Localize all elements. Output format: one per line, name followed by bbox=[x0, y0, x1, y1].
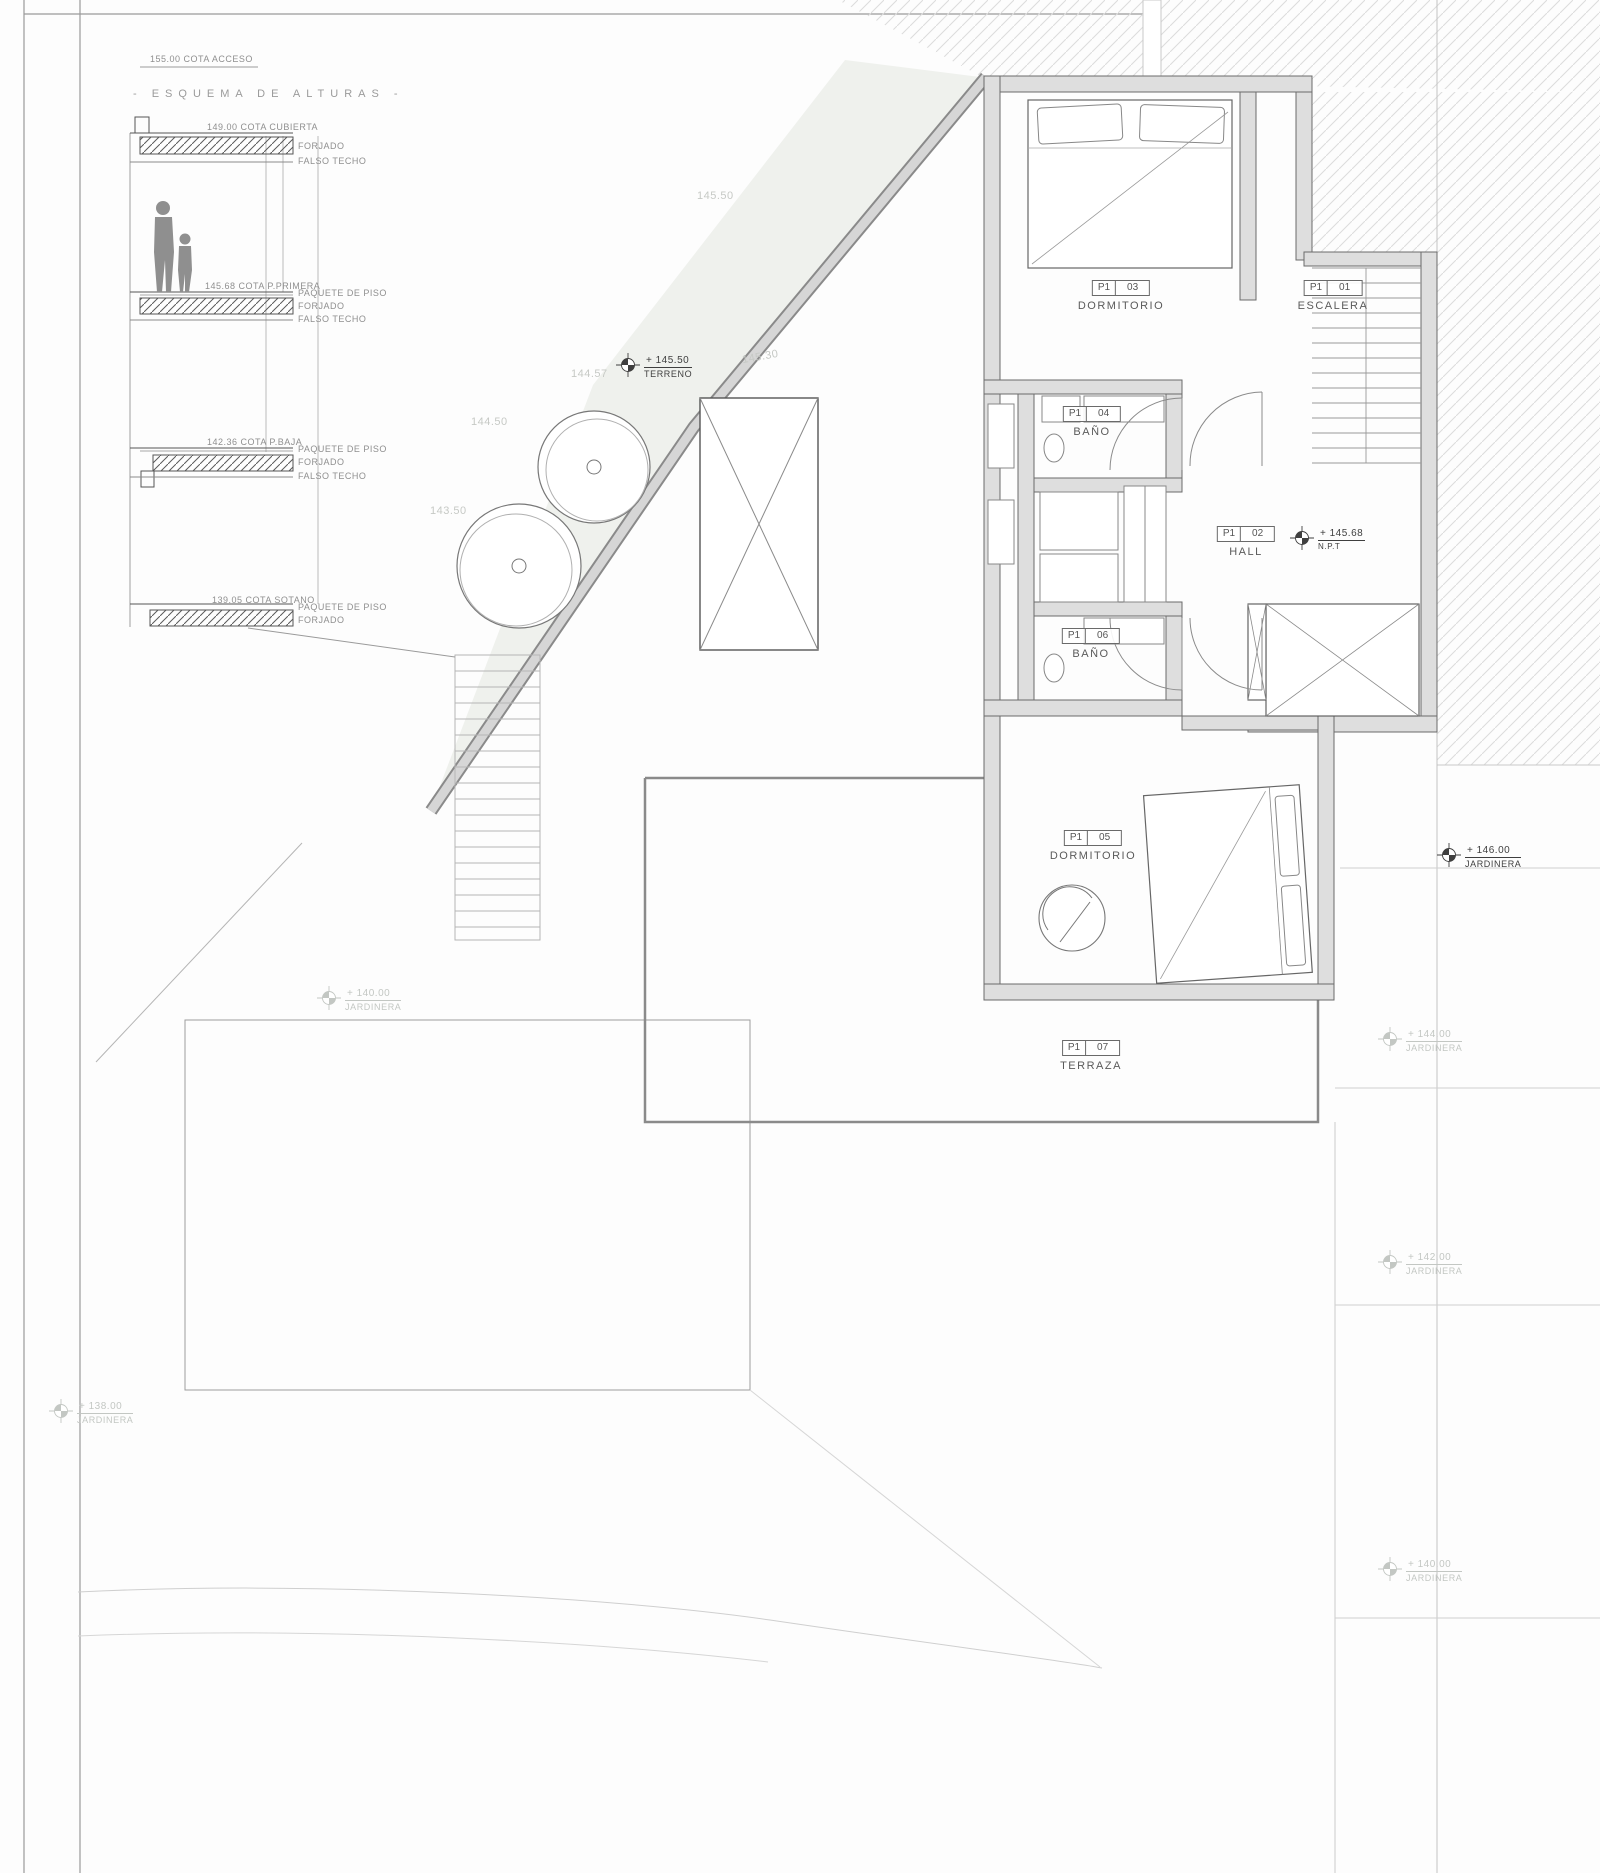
room-name: DORMITORIO bbox=[1050, 850, 1136, 862]
level-label: JARDINERA bbox=[77, 1415, 133, 1425]
room-tag-bano-04: P1 04 BAÑO bbox=[1063, 406, 1121, 438]
skylight bbox=[700, 398, 818, 650]
contour-label: 143.50 bbox=[430, 505, 467, 517]
armchair bbox=[1039, 885, 1105, 951]
forjado-label: FORJADO bbox=[298, 615, 345, 625]
level-label: JARDINERA bbox=[345, 1002, 401, 1012]
room-name: HALL bbox=[1229, 546, 1263, 558]
room-code-num: 01 bbox=[1328, 281, 1361, 295]
falso-techo-label: FALSO TECHO bbox=[298, 156, 366, 166]
level-marker-icon bbox=[1377, 1249, 1403, 1275]
contour-label: 144.50 bbox=[471, 416, 508, 428]
spot-level-jardinera-r3: + 140.00 JARDINERA bbox=[1377, 1556, 1462, 1583]
room-code-num: 02 bbox=[1241, 527, 1274, 541]
room-code-box: P1 06 bbox=[1062, 628, 1120, 644]
room-tag-terraza-07: P1 07 TERRAZA bbox=[1060, 1040, 1122, 1072]
drawing-sheet: 155.00 COTA ACCESO - ESQUEMA DE ALTURAS … bbox=[0, 0, 1600, 1873]
level-label: N.P.T bbox=[1318, 542, 1365, 551]
bed-bottom bbox=[1144, 785, 1313, 983]
level-marker-icon bbox=[1289, 525, 1315, 551]
human-figures bbox=[154, 201, 192, 292]
level-value: + 146.00 bbox=[1465, 845, 1521, 858]
esquema-title: - ESQUEMA DE ALTURAS - bbox=[133, 88, 404, 100]
room-tag-escalera-01: P1 01 ESCALERA bbox=[1298, 280, 1369, 312]
spot-level-jardinera-left: + 140.00 JARDINERA bbox=[316, 985, 401, 1012]
level-value: + 140.00 bbox=[345, 988, 401, 1001]
room-code-num: 03 bbox=[1116, 281, 1149, 295]
room-code-box: P1 07 bbox=[1062, 1040, 1120, 1056]
room-code-box: P1 05 bbox=[1064, 830, 1122, 846]
sheet-border-lines bbox=[24, 0, 1150, 1873]
room-code-prefix: P1 bbox=[1065, 831, 1088, 845]
level-value: + 138.00 bbox=[77, 1401, 133, 1414]
paquete-piso-label: PAQUETE DE PISO bbox=[298, 288, 387, 298]
room-tag-dormitorio-03: P1 03 DORMITORIO bbox=[1078, 280, 1164, 312]
level-label: JARDINERA bbox=[1406, 1266, 1462, 1276]
room-code-box: P1 04 bbox=[1063, 406, 1121, 422]
level-label: JARDINERA bbox=[1465, 859, 1521, 869]
level-marker-icon bbox=[1377, 1556, 1403, 1582]
room-name: DORMITORIO bbox=[1078, 300, 1164, 312]
esquema-section bbox=[130, 67, 318, 627]
room-code-prefix: P1 bbox=[1063, 1041, 1086, 1055]
room-code-prefix: P1 bbox=[1063, 629, 1086, 643]
level-marker-icon bbox=[1377, 1026, 1403, 1052]
room-code-prefix: P1 bbox=[1218, 527, 1241, 541]
falso-techo-label: FALSO TECHO bbox=[298, 471, 366, 481]
spot-level-jardinera-r2: + 142.00 JARDINERA bbox=[1377, 1249, 1462, 1276]
room-tag-bano-06: P1 06 BAÑO bbox=[1062, 628, 1120, 660]
contour-label: 145.50 bbox=[697, 190, 734, 202]
room-name: BAÑO bbox=[1072, 648, 1109, 660]
room-code-num: 06 bbox=[1086, 629, 1119, 643]
forjado-label: FORJADO bbox=[298, 457, 345, 467]
room-name: ESCALERA bbox=[1298, 300, 1369, 312]
level-value: + 145.68 bbox=[1318, 528, 1365, 541]
spot-level-jardinera-r1: + 144.00 JARDINERA bbox=[1377, 1026, 1462, 1053]
room-code-num: 04 bbox=[1087, 407, 1120, 421]
room-code-box: P1 03 bbox=[1092, 280, 1150, 296]
bed-top bbox=[1028, 100, 1232, 268]
room-code-prefix: P1 bbox=[1093, 281, 1116, 295]
paquete-piso-label: PAQUETE DE PISO bbox=[298, 602, 387, 612]
level-marker-icon bbox=[316, 985, 342, 1011]
paquete-piso-label: PAQUETE DE PISO bbox=[298, 444, 387, 454]
room-tag-dormitorio-05: P1 05 DORMITORIO bbox=[1050, 830, 1136, 862]
room-code-box: P1 01 bbox=[1304, 280, 1362, 296]
room-name: TERRAZA bbox=[1060, 1060, 1122, 1072]
forjado-label: FORJADO bbox=[298, 141, 345, 151]
level-value: + 142.00 bbox=[1406, 1252, 1462, 1265]
room-name: BAÑO bbox=[1073, 426, 1110, 438]
level-marker-icon bbox=[615, 352, 641, 378]
level-marker-icon bbox=[1436, 842, 1462, 868]
room-code-num: 05 bbox=[1088, 831, 1121, 845]
cota-baja-label: 142.36 COTA P.BAJA bbox=[207, 437, 302, 447]
level-marker-icon bbox=[48, 1398, 74, 1424]
room-code-prefix: P1 bbox=[1064, 407, 1087, 421]
cota-cubierta-label: 149.00 COTA CUBIERTA bbox=[207, 122, 318, 132]
contour-label: 144.57 bbox=[571, 368, 608, 380]
room-code-num: 07 bbox=[1086, 1041, 1119, 1055]
cota-acceso-label: 155.00 COTA ACCESO bbox=[150, 54, 253, 64]
level-label: TERRENO bbox=[644, 369, 692, 379]
room-code-prefix: P1 bbox=[1305, 281, 1328, 295]
level-value: + 144.00 bbox=[1406, 1029, 1462, 1042]
falso-techo-label: FALSO TECHO bbox=[298, 314, 366, 324]
spot-level-npt: + 145.68 N.P.T bbox=[1289, 525, 1365, 551]
room-tag-hall-02: P1 02 HALL bbox=[1217, 526, 1275, 558]
spot-level-jardinera-bottom-left: + 138.00 JARDINERA bbox=[48, 1398, 133, 1425]
elevator-shaft bbox=[1248, 604, 1419, 716]
level-label: JARDINERA bbox=[1406, 1043, 1462, 1053]
room-code-box: P1 02 bbox=[1217, 526, 1275, 542]
spot-level-jardinera-main: + 146.00 JARDINERA bbox=[1436, 842, 1521, 869]
level-label: JARDINERA bbox=[1406, 1573, 1462, 1583]
level-value: + 145.50 bbox=[644, 355, 692, 368]
forjado-label: FORJADO bbox=[298, 301, 345, 311]
spot-level-terreno: + 145.50 TERRENO bbox=[615, 352, 692, 379]
level-value: + 140.00 bbox=[1406, 1559, 1462, 1572]
